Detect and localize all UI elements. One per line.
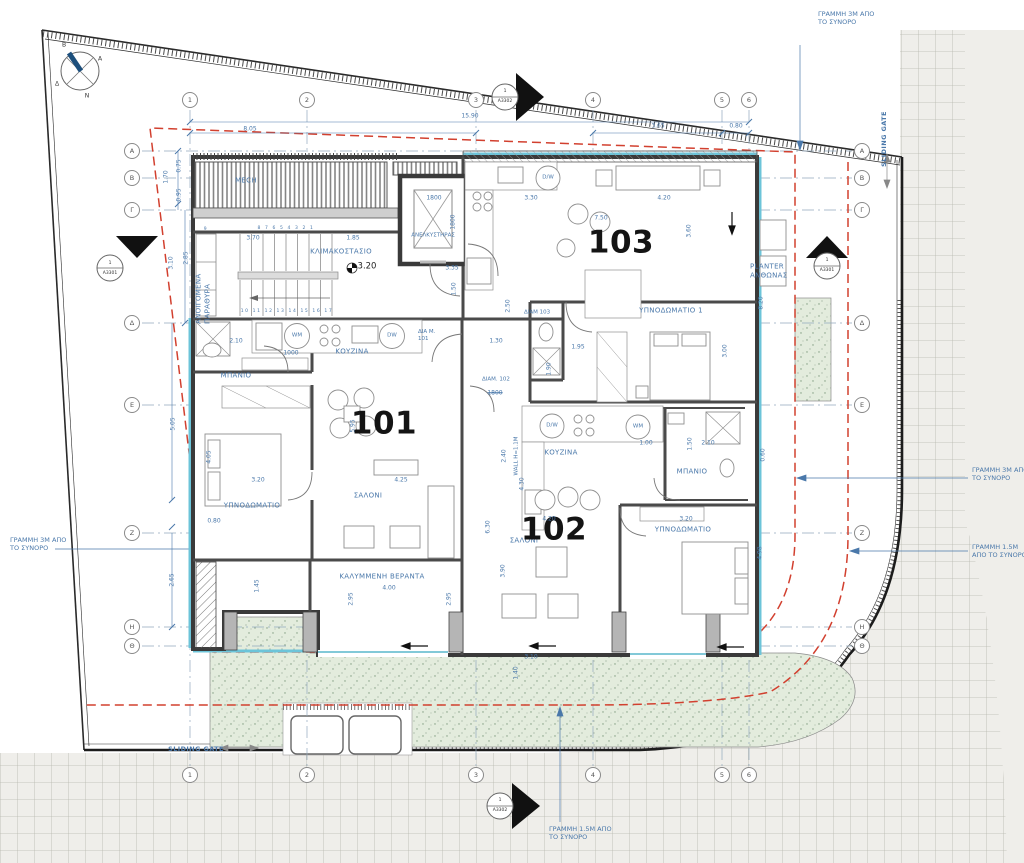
grid-bubble-row-B-right: B bbox=[854, 170, 870, 186]
grid-bubble-col-6-top: 6 bbox=[741, 92, 757, 108]
label-sheet: A3302 bbox=[493, 808, 508, 814]
grid-bubble-col-2-bottom: 2 bbox=[299, 767, 315, 783]
label-u103: ΔΙΑΜ 103 bbox=[524, 310, 554, 317]
label-elevator: ΑΝΕΛΚΥΣΤΗΡΑΣ bbox=[411, 233, 455, 240]
label-bed1-300: 3.00 bbox=[721, 344, 729, 357]
label-liv101-630: 6.30 bbox=[484, 520, 492, 533]
label-line-3m: ΓΡΑΜΜΗ 3Μ ΑΠΟ ΤΟ ΣΥΝΟΡΟ bbox=[818, 10, 878, 26]
label-east: Α bbox=[98, 55, 102, 63]
grid-bubble-row-Ε-left: Ε bbox=[124, 397, 140, 413]
label-openable-windows: ΑΝΟΙΓΟΜΕΝΑ ΠΑΡΑΘΥΡΑ bbox=[194, 260, 212, 324]
label-west: Δ bbox=[55, 80, 59, 88]
label-number: 1 bbox=[109, 261, 112, 267]
grid-bubble-row-Γ-right: Γ bbox=[854, 202, 870, 218]
label-right-820: 8.20 bbox=[757, 296, 765, 309]
label-bedroom-101: ΥΠΝΟΔΩΜΑΤΙΟ bbox=[224, 502, 280, 511]
label-b102-150: 1.50 bbox=[686, 437, 694, 450]
label-dw: DW bbox=[387, 333, 397, 340]
grid-bubble-row-A-right: A bbox=[854, 143, 870, 159]
label-left-095: 0.95 bbox=[175, 188, 183, 201]
label-number: 1 bbox=[504, 89, 507, 95]
label-ver-145: 1.45 bbox=[253, 579, 261, 592]
label-left-310: 3.10 bbox=[167, 256, 175, 269]
label-sliding-gate: SLIDING GATE bbox=[880, 111, 888, 167]
floor-plan-sheet: MECHΑΝΕΛΚΥΣΤΗΡΑΣΚΛΙΜΑΚΟΣΤΑΣΙΟΚΟΥΖΙΝΑΚΟΥΖ… bbox=[0, 0, 1024, 863]
label-bed101-320: 3.20 bbox=[251, 476, 264, 484]
grid-bubble-col-3-bottom: 3 bbox=[468, 767, 484, 783]
grid-bubble-row-Η-right: Η bbox=[854, 619, 870, 635]
label-left-505: 5.05 bbox=[169, 417, 177, 430]
label-kitchen-102: ΚΟΥΖΙΝΑ bbox=[544, 449, 577, 458]
label-u101: ΔΙΑ Μ. 101 bbox=[418, 329, 440, 343]
label-sheet: A3301 bbox=[103, 271, 118, 277]
grid-bubble-row-Ζ-left: Ζ bbox=[124, 525, 140, 541]
label-bed102-320: 3.20 bbox=[679, 515, 692, 523]
grid-bubble-row-Δ-left: Δ bbox=[124, 315, 140, 331]
label-k102-100: 1.00 bbox=[639, 439, 652, 447]
label-s103-750: 7.50 bbox=[594, 214, 607, 222]
label-a103: 103 bbox=[588, 224, 654, 263]
label-hall-130: 1.30 bbox=[489, 337, 502, 345]
grid-bubble-col-1-bottom: 1 bbox=[182, 767, 198, 783]
label-stair-370: 3.70 bbox=[246, 234, 259, 242]
label-staircase: ΚΛΙΜΑΚΟΣΤΑΣΙΟ bbox=[310, 248, 372, 257]
label-line-15m: ΓΡΑΜΜΗ 1.5Μ ΑΠΟ ΤΟ ΣΥΝΟΡΟ bbox=[549, 825, 613, 841]
label-s103-420: 4.20 bbox=[657, 194, 670, 202]
label-wm: WM bbox=[292, 333, 302, 340]
label-top-1-3: 8.05 bbox=[243, 125, 256, 133]
grid-bubble-col-5-top: 5 bbox=[714, 92, 730, 108]
label-bathroom-101: ΜΠΑΝΙΟ bbox=[221, 372, 252, 381]
label-ver-295b: 2.95 bbox=[445, 592, 453, 605]
label-lift-d: 1800 bbox=[449, 214, 457, 229]
grid-bubble-row-Δ-right: Δ bbox=[854, 315, 870, 331]
label-hall-240: 2.40 bbox=[500, 449, 508, 462]
label-r-498: 4.98 bbox=[756, 546, 764, 559]
grid-bubble-row-A-left: A bbox=[124, 143, 140, 159]
grid-bubble-row-Θ-right: Θ bbox=[854, 638, 870, 654]
grid-bubble-col-2-top: 2 bbox=[299, 92, 315, 108]
grid-bubble-col-3-top: 3 bbox=[468, 92, 484, 108]
grid-bubble-row-Ζ-right: Ζ bbox=[854, 525, 870, 541]
label-left-075: 0.75 bbox=[175, 159, 183, 172]
label-sliding-gate: SLIDING GATE bbox=[168, 745, 224, 753]
label-kitchen101-1000: 1000 bbox=[283, 349, 298, 357]
label-ver-295a: 2.95 bbox=[347, 592, 355, 605]
label-steps-lower: 10 11 12 13 14 15 16 17 bbox=[241, 309, 334, 315]
label-bathroom-102: ΜΠΑΝΙΟ bbox=[677, 468, 708, 477]
label-lift-250: 2.50 bbox=[504, 299, 512, 312]
label-veranda: ΚΑΛΥΜΜΕΝΗ ΒΕΡΑΝΤΑ bbox=[339, 573, 424, 582]
label-lift-150: 1.50 bbox=[450, 282, 458, 295]
label-left-170: 1.70 bbox=[162, 170, 170, 183]
label-bed101-405: 4.05 bbox=[205, 450, 213, 463]
label-ver-400: 4.00 bbox=[382, 584, 395, 592]
label-stair-185: 1.85 bbox=[346, 234, 359, 242]
label-bedroom1-102: ΥΠΝΟΔΩΜΑΤΙΟ 1 bbox=[639, 307, 703, 316]
label-r-060: 0.60 bbox=[759, 448, 767, 461]
grid-bubble-row-Γ-left: Γ bbox=[124, 202, 140, 218]
label-dws: D/W bbox=[542, 175, 554, 182]
label-bot-310: 3.10 bbox=[524, 653, 537, 661]
label-a101: 101 bbox=[351, 405, 417, 444]
grid-bubble-row-Ε-right: Ε bbox=[854, 397, 870, 413]
label-bed101-080: 0.80 bbox=[207, 517, 220, 525]
annotation-layer: MECHΑΝΕΛΚΥΣΤΗΡΑΣΚΛΙΜΑΚΟΣΤΑΣΙΟΚΟΥΖΙΝΑΚΟΥΖ… bbox=[0, 0, 1024, 863]
label-number: 1 bbox=[499, 798, 502, 804]
label-lift-w: 1800 bbox=[426, 194, 441, 202]
label-b102-210: 2.10 bbox=[701, 439, 714, 447]
label-bath101-210: 2.10 bbox=[229, 337, 242, 345]
label-bot-140: 1.40 bbox=[512, 666, 520, 679]
label-mech: MECH bbox=[235, 177, 257, 186]
label-lift-335: 3.35 bbox=[445, 264, 458, 272]
label-tag1800: 1800 bbox=[487, 389, 502, 397]
label-hall-190: 1.90 bbox=[545, 362, 553, 375]
label-steps-upper: 8 7 6 5 4 3 2 1 bbox=[258, 226, 315, 232]
label-number: 1 bbox=[826, 258, 829, 264]
label-liv102-390: 3.90 bbox=[499, 564, 507, 577]
grid-bubble-row-B-left: B bbox=[124, 170, 140, 186]
label-top-5-6: 0.80 bbox=[729, 122, 742, 130]
label-line-15m: ΓΡΑΜΜΗ 1.5Μ ΑΠΟ ΤΟ ΣΥΝΟΡΟ bbox=[972, 543, 1024, 559]
label-top-total: 15.90 bbox=[461, 112, 478, 120]
grid-bubble-col-4-bottom: 4 bbox=[585, 767, 601, 783]
label-line-3m: ΓΡΑΜΜΗ 3Μ ΑΠΟ ΤΟ ΣΥΝΟΡΟ bbox=[972, 466, 1024, 482]
label-u102: ΔΙΑΜ. 102 bbox=[482, 377, 512, 384]
label-left-285: 2.85 bbox=[182, 251, 190, 264]
grid-bubble-row-Η-left: Η bbox=[124, 619, 140, 635]
label-north: Β bbox=[62, 41, 66, 49]
label-sheet: A3302 bbox=[498, 99, 513, 105]
label-hall-195: 1.95 bbox=[571, 343, 584, 351]
label-south: Ν bbox=[85, 92, 90, 100]
label-wm: WM bbox=[633, 424, 643, 431]
label-s103-360: 3.60 bbox=[685, 224, 693, 237]
label-k103-330: 3.30 bbox=[524, 194, 537, 202]
label-left-265: 2.65 bbox=[168, 573, 176, 586]
grid-bubble-col-5-bottom: 5 bbox=[714, 767, 730, 783]
label-planter: PLANTER ΑΝΘΩΝΑΣ bbox=[750, 262, 796, 280]
label-line-3m: ΓΡΑΜΜΗ 3Μ ΑΠΟ ΤΟ ΣΥΝΟΡΟ bbox=[10, 536, 70, 552]
label-kitchen-101: ΚΟΥΖΙΝΑ bbox=[335, 348, 368, 357]
label-step-left: 9 bbox=[204, 227, 208, 233]
grid-bubble-col-1-top: 1 bbox=[182, 92, 198, 108]
label-bedroom-102: ΥΠΝΟΔΩΜΑΤΙΟ bbox=[655, 526, 711, 535]
label-liv101-425: 4.25 bbox=[394, 476, 407, 484]
label-wall-height: WALL H=1.1M bbox=[514, 436, 521, 475]
label-liv102-420: 4.20 bbox=[542, 515, 555, 523]
label-top-4-5: 3.65 bbox=[651, 122, 664, 130]
grid-bubble-row-Θ-left: Θ bbox=[124, 638, 140, 654]
label-sheet: A3301 bbox=[820, 268, 835, 274]
label-level: 3.20 bbox=[358, 262, 377, 273]
grid-bubble-col-6-bottom: 6 bbox=[741, 767, 757, 783]
label-liv101-595: 5.95 bbox=[349, 419, 357, 432]
label-dws: D/W bbox=[546, 423, 558, 430]
grid-bubble-col-4-top: 4 bbox=[585, 92, 601, 108]
label-hall-430: 4.30 bbox=[518, 477, 526, 490]
label-living-101: ΣΑΛΟΝΙ bbox=[354, 492, 383, 501]
